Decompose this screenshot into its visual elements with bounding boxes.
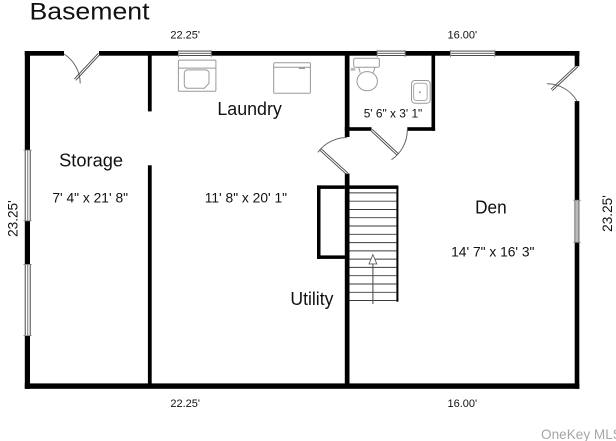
svg-text:16.00': 16.00': [447, 30, 477, 42]
svg-text:14' 7" x 16' 3": 14' 7" x 16' 3": [451, 244, 534, 259]
svg-text:Laundry: Laundry: [217, 99, 282, 119]
svg-text:Basement: Basement: [30, 0, 150, 26]
svg-text:7' 4" x 21' 8": 7' 4" x 21' 8": [52, 191, 128, 206]
svg-text:Den: Den: [475, 197, 507, 217]
svg-text:11' 8" x 20' 1": 11' 8" x 20' 1": [205, 191, 287, 206]
svg-text:OneKey MLS: OneKey MLS: [541, 427, 616, 441]
svg-text:23.25': 23.25': [600, 195, 615, 232]
svg-text:22.25': 22.25': [170, 398, 200, 410]
svg-text:22.25': 22.25': [170, 30, 200, 42]
svg-text:Storage: Storage: [59, 150, 123, 170]
svg-text:16.00': 16.00': [447, 398, 477, 410]
svg-text:23.25': 23.25': [5, 200, 20, 237]
svg-text:Utility: Utility: [290, 289, 334, 309]
svg-text:5' 6" x 3' 1": 5' 6" x 3' 1": [364, 106, 423, 120]
